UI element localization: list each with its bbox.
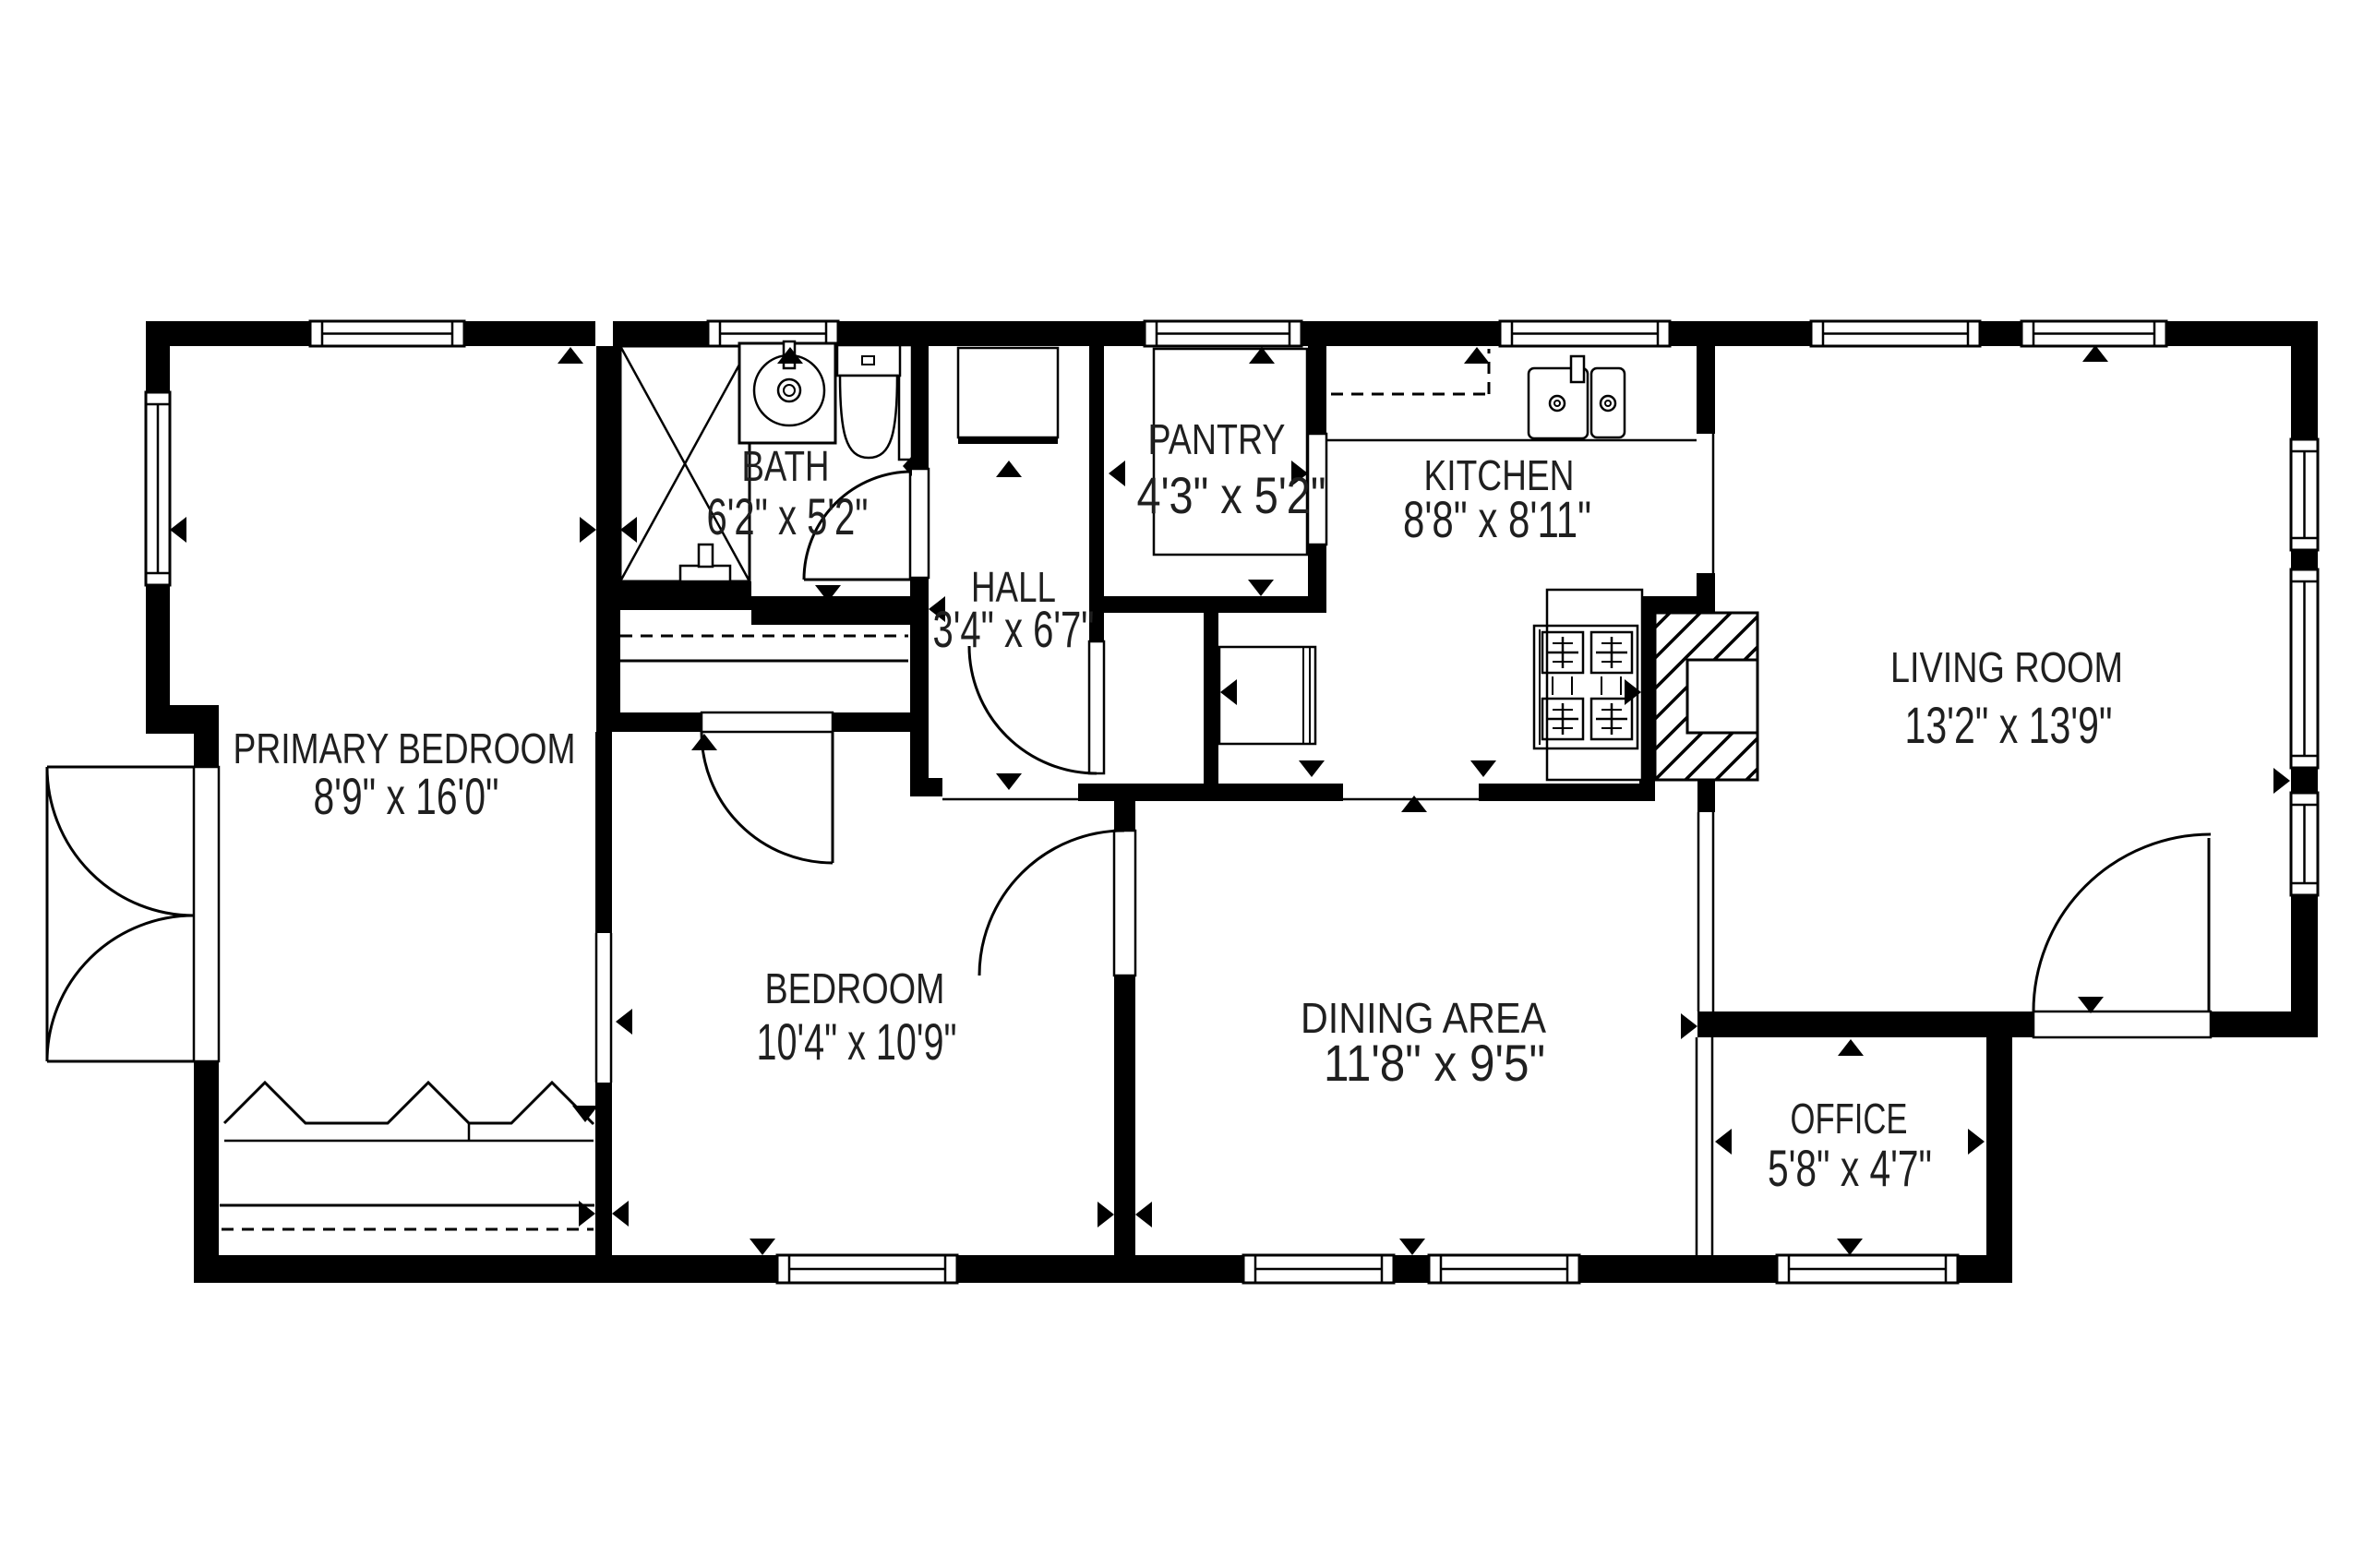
svg-text:LIVING ROOM: LIVING ROOM [1890, 643, 2123, 691]
svg-text:PRIMARY BEDROOM: PRIMARY BEDROOM [234, 724, 576, 772]
svg-text:5'8" x 4'7": 5'8" x 4'7" [1768, 1139, 1932, 1197]
svg-text:8'8" x 8'11": 8'8" x 8'11" [1403, 490, 1591, 548]
svg-text:PANTRY: PANTRY [1148, 415, 1286, 463]
svg-text:3'4" x 6'7": 3'4" x 6'7" [933, 600, 1095, 658]
svg-text:13'2" x 13'9": 13'2" x 13'9" [1905, 696, 2113, 754]
svg-text:4'3" x 5'2": 4'3" x 5'2" [1137, 466, 1326, 524]
svg-text:OFFICE: OFFICE [1791, 1095, 1908, 1143]
svg-text:11'8" x 9'5": 11'8" x 9'5" [1324, 1034, 1545, 1092]
svg-text:BATH: BATH [742, 442, 830, 490]
svg-text:8'9" x 16'0": 8'9" x 16'0" [314, 767, 499, 825]
svg-text:BEDROOM: BEDROOM [765, 964, 945, 1012]
svg-text:10'4" x 10'9": 10'4" x 10'9" [757, 1012, 957, 1071]
svg-text:6'2" x 5'2": 6'2" x 5'2" [707, 487, 869, 545]
